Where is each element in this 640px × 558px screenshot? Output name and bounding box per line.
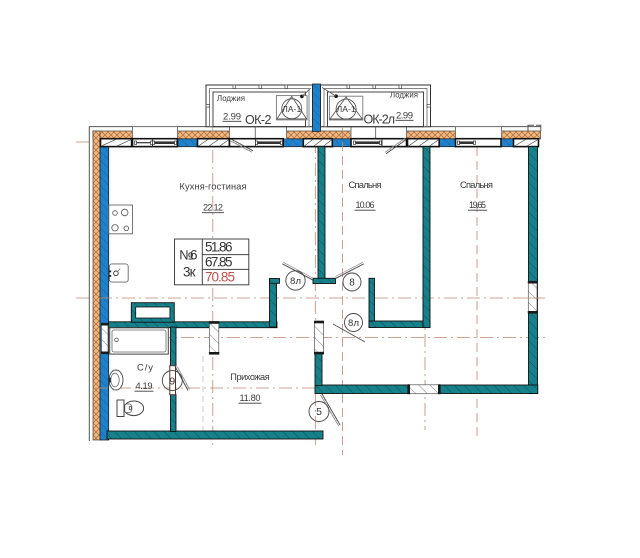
svg-text:70.85: 70.85	[205, 270, 235, 285]
svg-text:2.99: 2.99	[223, 112, 241, 123]
svg-text:11.80: 11.80	[240, 393, 261, 403]
svg-text:Прихожая: Прихожая	[230, 372, 269, 382]
svg-text:4.19: 4.19	[136, 381, 153, 391]
svg-text:№6: №6	[179, 248, 198, 263]
svg-text:19.65: 19.65	[469, 200, 486, 210]
svg-text:ОК-2л: ОК-2л	[364, 113, 396, 127]
svg-text:51.86: 51.86	[205, 239, 233, 254]
svg-text:22.12: 22.12	[203, 203, 223, 213]
svg-text:Спальня: Спальня	[349, 179, 382, 190]
svg-text:С/у: С/у	[137, 363, 153, 374]
svg-text:3к: 3к	[183, 264, 196, 279]
svg-text:Кухня-гостиная: Кухня-гостиная	[180, 182, 247, 192]
svg-text:Лоджия: Лоджия	[390, 91, 418, 100]
svg-text:8л: 8л	[348, 318, 359, 329]
svg-text:8л: 8л	[290, 276, 301, 287]
svg-text:5: 5	[316, 406, 322, 418]
svg-text:10.06: 10.06	[356, 200, 375, 210]
svg-text:Лоджия: Лоджия	[217, 94, 245, 103]
svg-text:8: 8	[349, 278, 355, 289]
svg-text:9: 9	[169, 375, 175, 387]
svg-text:67.85: 67.85	[205, 254, 233, 269]
svg-text:ОК-2: ОК-2	[245, 113, 272, 127]
svg-text:ЛА-1: ЛА-1	[282, 104, 301, 114]
svg-text:Спальня: Спальня	[460, 179, 493, 190]
svg-text:ЛА-1: ЛА-1	[337, 104, 356, 114]
svg-text:2.99: 2.99	[396, 111, 413, 122]
